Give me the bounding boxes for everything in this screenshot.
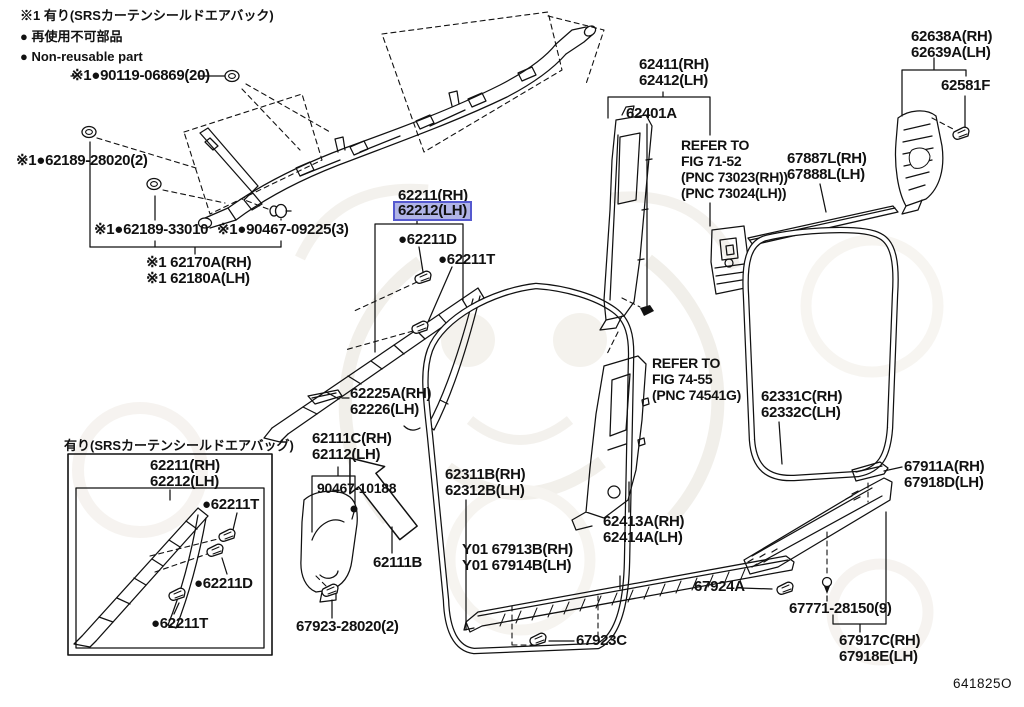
part-label-62331c[interactable]: 62331C(RH) 62332C(LH) [761,389,842,420]
clip-62211d-icon [415,271,431,283]
inset-part-label-62211[interactable]: 62211(RH) 62212(LH) [150,458,220,489]
part-label-line: 62411(RH) [639,57,709,73]
part-label-line: 62413A(RH) [603,514,684,530]
legend-srs-note: ※1 有り(SRSカーテンシールドエアバック) [20,8,274,24]
part-label-line: 62332C(LH) [761,405,842,421]
part-label-67917c[interactable]: 67917C(RH) 67918E(LH) [839,633,920,664]
part-label-67923-28020[interactable]: 67923-28020(2) [296,619,399,635]
dashed-leads-rear-step [827,483,868,574]
parts-diagram-canvas: ※1 有り(SRSカーテンシールドエアバック) ● 再使用不可部品 ● Non-… [0,0,1024,707]
clip-62189-28020-icon [82,127,96,138]
refer-line: FIG 71-52 [681,153,788,169]
part-label-line: 62311B(RH) [445,467,525,483]
part-label-90119-06869[interactable]: ※1●90119-06869(20) [71,68,210,84]
clip-90119-icon [225,71,239,82]
part-label-line: 62225A(RH) [350,386,431,402]
part-label-line: 67888L(LH) [787,167,867,183]
part-label-line: 62212(LH) [150,474,220,490]
inset-clip-t-bottom-icon [169,588,185,600]
part-label-line: 62112(LH) [312,447,392,463]
refer-line: FIG 74-55 [652,371,741,387]
refer-line: REFER TO [681,137,788,153]
legend-non-reusable-jp: ● 再使用不可部品 [20,29,122,45]
part-label-62401a[interactable]: 62401A [626,106,677,122]
part-label-line: 67918E(LH) [839,649,920,665]
part-label-62211d[interactable]: ●62211D [398,232,457,248]
refer-note-fig-71-52[interactable]: REFER TO FIG 71-52 (PNC 73023(RH)) (PNC … [681,137,788,201]
part-label-line: ※1 62170A(RH) [146,255,251,271]
part-label-line: 62226(LH) [350,402,431,418]
b-pillar-lower-trim-drawing [572,356,649,530]
part-label-line: 62211(RH) [150,458,220,474]
part-label-62311b[interactable]: 62311B(RH) 62312B(LH) [445,467,525,498]
part-label-line: Y01 67913B(RH) [462,542,573,558]
part-label-62581f[interactable]: 62581F [941,78,990,94]
part-label-62211t[interactable]: ●62211T [438,252,495,268]
part-label-62189-28020[interactable]: ※1●62189-28020(2) [16,153,148,169]
refer-note-fig-74-55[interactable]: REFER TO FIG 74-55 (PNC 74541G) [652,355,741,403]
part-label-line: 67918D(LH) [904,475,984,491]
part-label-67924a[interactable]: 67924A [694,579,745,595]
part-label-62212-lh-highlighted[interactable]: 62212(LH) [393,201,472,221]
part-label-62170a[interactable]: ※1 62170A(RH) ※1 62180A(LH) [146,255,251,286]
screw-67771-icon [823,578,832,595]
inset-label-62211d[interactable]: ●62211D [194,576,253,592]
dashed-panel-outlines [184,12,604,214]
part-label-67911a[interactable]: 67911A(RH) 67918D(LH) [904,459,984,490]
dashed-lead-62581f [932,118,955,130]
part-label-line: 62111C(RH) [312,431,392,447]
clip-62401a-icon [640,305,654,316]
dashed-leader-lines-upper [97,84,330,209]
part-label-line: 62414A(LH) [603,530,684,546]
part-label-62225a[interactable]: 62225A(RH) 62226(LH) [350,386,431,417]
figure-code: 641825O [953,676,1012,692]
clip-62211t-icon [412,321,428,333]
refer-line: (PNC 73023(RH)) [681,169,788,185]
part-label-line: 62638A(RH) [911,29,992,45]
part-label-90467-10188[interactable]: 90467-10188 [317,480,396,496]
part-label-line: Y01 67914B(LH) [462,558,573,574]
part-label-62638a[interactable]: 62638A(RH) 62639A(LH) [911,29,992,60]
inset-label-62211t-top[interactable]: ●62211T [202,497,259,513]
part-label-line: 62639A(LH) [911,45,992,61]
clip-62581f-icon [953,127,969,139]
part-label-62189-33010[interactable]: ※1●62189-33010 [94,222,208,238]
part-label-line: ※1 62180A(LH) [146,271,251,287]
part-label-67913b[interactable]: Y01 67913B(RH) Y01 67914B(LH) [462,542,573,573]
roof-rail-bracket-drawing [200,128,262,210]
part-label-62411[interactable]: 62411(RH) 62412(LH) [639,57,709,88]
part-label-line: 62312B(LH) [445,483,525,499]
legend-non-reusable-en: ● Non-reusable part [20,49,143,65]
clip-67923c-icon [530,633,546,645]
part-label-67771-28150[interactable]: 67771-28150(9) [789,601,892,617]
clip-67924a-icon [777,582,793,594]
part-label-62111b[interactable]: 62111B [373,555,422,571]
part-label-62413a[interactable]: 62413A(RH) 62414A(LH) [603,514,684,545]
clip-90467-09225-icon [270,205,291,218]
inset-clip-d-icon [207,544,223,556]
inset-dashed-leads [150,539,218,572]
refer-line: (PNC 73024(LH)) [681,185,788,201]
part-label-line: 62331C(RH) [761,389,842,405]
inset-clip-t-top-icon [219,529,235,541]
inset-title: 有り(SRSカーテンシールドエアバッグ) [64,438,294,454]
part-label-67887l[interactable]: 67887L(RH) 67888L(LH) [787,151,867,182]
part-label-line: 67887L(RH) [787,151,867,167]
part-label-67923c[interactable]: 67923C [576,633,627,649]
part-label-line: 67911A(RH) [904,459,984,475]
part-label-62111c[interactable]: 62111C(RH) 62112(LH) [312,431,392,462]
inset-label-62211t-bottom[interactable]: ●62211T [151,616,208,632]
refer-line: REFER TO [652,355,741,371]
clip-62189-33010-icon [147,179,161,190]
part-label-line: 62412(LH) [639,73,709,89]
part-label-line: 67917C(RH) [839,633,920,649]
refer-line: (PNC 74541G) [652,387,741,403]
part-label-90467-09225[interactable]: ※1●90467-09225(3) [217,222,349,238]
